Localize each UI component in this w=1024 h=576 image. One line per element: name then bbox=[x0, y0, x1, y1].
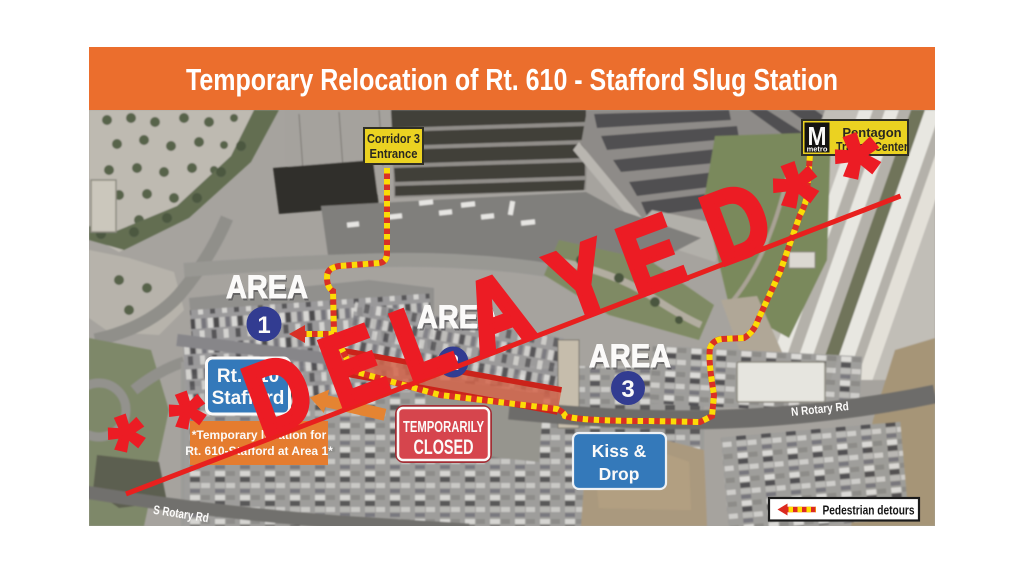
svg-text:Pedestrian detours: Pedestrian detours bbox=[823, 504, 915, 518]
svg-text:Temporary Relocation of Rt. 61: Temporary Relocation of Rt. 610 - Staffo… bbox=[186, 62, 838, 97]
